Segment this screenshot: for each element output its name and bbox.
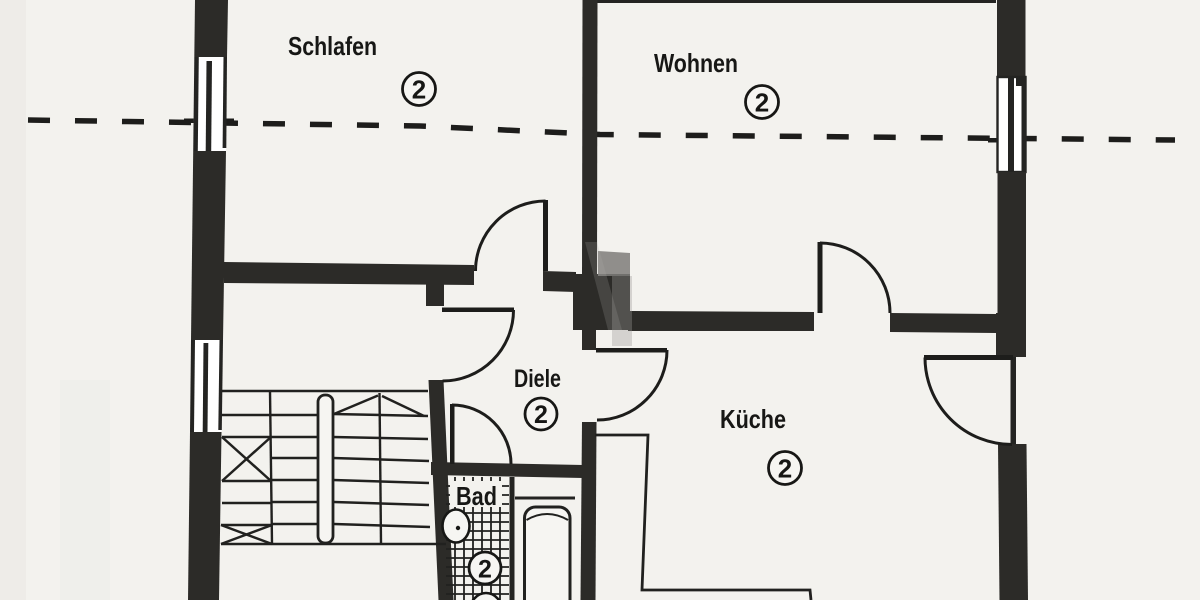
- svg-text:Küche: Küche: [720, 404, 786, 434]
- svg-text:2: 2: [778, 454, 792, 484]
- svg-text:2: 2: [755, 88, 769, 118]
- svg-text:2: 2: [534, 401, 548, 429]
- svg-text:Schlafen: Schlafen: [288, 31, 377, 61]
- svg-text:Wohnen: Wohnen: [654, 48, 738, 78]
- svg-text:Bad: Bad: [456, 481, 497, 511]
- svg-text:Diele: Diele: [514, 365, 561, 393]
- svg-text:2: 2: [412, 75, 426, 105]
- svg-text:2: 2: [478, 556, 492, 584]
